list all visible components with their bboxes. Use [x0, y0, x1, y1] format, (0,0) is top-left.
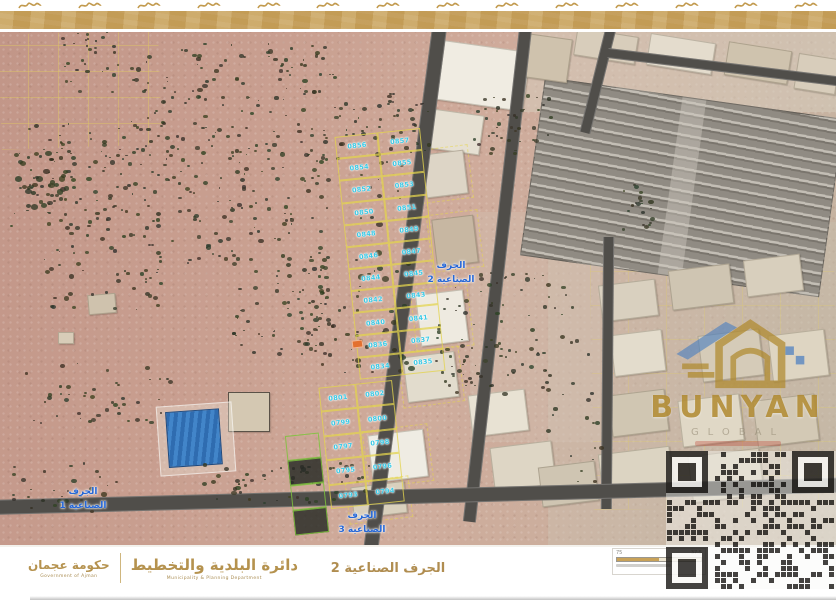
shrub	[309, 259, 314, 263]
plot-number: 0840	[366, 317, 386, 327]
shrub	[106, 32, 108, 33]
shrub	[136, 401, 140, 404]
shrub	[149, 277, 152, 279]
shrub	[212, 78, 216, 82]
shrub	[224, 467, 229, 471]
shrub	[595, 421, 600, 425]
shrub	[184, 102, 187, 104]
shrub	[151, 244, 154, 246]
shrub	[277, 352, 282, 356]
shrub	[180, 171, 182, 173]
shrub	[547, 134, 549, 136]
plot-number: 0852	[352, 185, 372, 195]
area-label-line: الصناعية 3	[338, 525, 385, 535]
shrub	[121, 209, 124, 211]
shrub	[252, 351, 256, 354]
shrub	[570, 341, 574, 344]
shrub	[122, 235, 126, 238]
shrub	[116, 273, 120, 276]
shrub	[287, 308, 289, 309]
shrub	[318, 252, 321, 255]
shrub	[490, 272, 492, 274]
shrub	[187, 209, 192, 213]
shrub	[146, 128, 151, 132]
shrub	[201, 127, 204, 130]
shrub	[622, 228, 625, 231]
area-label-industrial-3: الجرف الصناعية 3	[330, 510, 394, 538]
shrub	[477, 143, 481, 146]
ornament-icon	[376, 1, 400, 10]
shrub	[302, 79, 307, 83]
shrub	[86, 177, 91, 181]
shrub	[113, 307, 117, 310]
shrub	[525, 273, 528, 276]
shrub	[464, 380, 468, 383]
shrub	[166, 158, 168, 159]
shrub	[358, 117, 360, 118]
shrub	[128, 162, 133, 166]
shrub	[250, 479, 254, 482]
shrub	[156, 251, 161, 255]
shrub	[255, 144, 258, 147]
shrub	[334, 338, 338, 341]
area-label-industrial-1: الجرف الصناعية 1	[50, 486, 116, 514]
shrub	[215, 132, 217, 134]
shrub	[83, 395, 86, 397]
shrub	[40, 185, 44, 188]
shrub	[329, 74, 331, 75]
shrub	[204, 98, 208, 101]
plot-number: 0794	[375, 486, 395, 496]
shrub	[26, 210, 28, 212]
shrub	[178, 210, 182, 213]
shrub	[112, 45, 116, 48]
shrub	[562, 394, 564, 396]
shrub	[100, 237, 105, 241]
shrub	[254, 150, 257, 152]
plot-number: 0849	[399, 225, 419, 235]
shrub	[420, 103, 423, 106]
shrub	[446, 298, 450, 301]
shrub	[211, 145, 213, 147]
shrub	[511, 273, 515, 276]
shrub	[199, 220, 202, 222]
shrub	[277, 283, 279, 284]
shrub	[530, 328, 535, 332]
shrub	[205, 80, 210, 84]
shrub	[286, 263, 291, 267]
shrub	[181, 137, 186, 141]
shrub	[541, 386, 546, 390]
shrub	[68, 123, 70, 125]
shrub	[543, 305, 547, 309]
shrub	[493, 97, 495, 98]
shrub	[546, 283, 551, 287]
plot-number: 0800	[367, 413, 387, 423]
shrub	[424, 150, 426, 152]
shrub	[219, 64, 223, 67]
shrub	[513, 152, 517, 156]
shrub	[80, 418, 82, 419]
shrub	[532, 126, 537, 130]
shrub	[218, 255, 221, 257]
shrub	[308, 302, 311, 305]
shrub	[69, 223, 74, 227]
shrub	[312, 90, 316, 94]
shrub	[312, 168, 317, 172]
shrub	[58, 264, 61, 267]
shrub	[109, 157, 111, 159]
area-label-line: الجرف	[436, 261, 465, 271]
shrub	[222, 215, 227, 219]
plot-number: 0836	[368, 339, 388, 349]
shrub	[197, 64, 199, 65]
shrub	[147, 55, 152, 59]
shrub	[103, 208, 107, 211]
shrub	[474, 385, 476, 386]
shrub	[77, 412, 81, 415]
shrub	[253, 217, 257, 220]
shrub	[471, 347, 474, 349]
shrub	[257, 230, 261, 233]
plot-number: 0793	[338, 490, 358, 500]
plot-number: 0844	[361, 273, 381, 283]
shrub	[484, 108, 487, 110]
shrub	[271, 470, 274, 472]
shrub	[10, 225, 13, 227]
shrub	[451, 366, 453, 368]
shrub	[187, 165, 190, 167]
shrub	[300, 141, 303, 143]
shrub	[194, 214, 199, 218]
shrub	[45, 270, 50, 274]
shrub	[12, 498, 16, 501]
shrub	[56, 415, 58, 417]
shrub	[483, 359, 488, 363]
shrub	[69, 465, 72, 468]
shrub	[66, 62, 71, 66]
shrub	[84, 209, 87, 211]
shrub	[282, 222, 287, 226]
shrub	[310, 149, 314, 152]
shrub	[548, 374, 552, 377]
shrub	[149, 140, 153, 143]
shrub	[31, 204, 38, 210]
shrub	[139, 128, 143, 131]
shrub	[299, 311, 303, 314]
shrub	[344, 102, 348, 106]
shrub	[285, 115, 287, 116]
shrub	[122, 158, 124, 160]
shrub	[211, 480, 216, 484]
shrub	[153, 190, 158, 194]
shrub	[27, 156, 30, 159]
shrub	[378, 126, 381, 128]
shrub	[136, 309, 138, 310]
plot-number: 0835	[413, 357, 433, 367]
shrub	[30, 187, 33, 189]
flyer-page: 0856085708540855085208530850085108480849…	[0, 0, 836, 600]
shrub	[462, 364, 464, 366]
shrub	[229, 200, 231, 202]
shrub	[301, 353, 303, 355]
shrub	[271, 167, 275, 171]
shrub	[497, 122, 502, 126]
shrub	[496, 106, 500, 110]
shrub	[30, 507, 33, 510]
shrub	[353, 109, 355, 111]
ornament-icon	[734, 1, 758, 10]
shrub	[502, 304, 504, 306]
shrub	[160, 125, 163, 128]
shrub	[623, 190, 626, 192]
shrub	[224, 59, 227, 62]
shrub	[95, 470, 99, 473]
shrub	[27, 188, 30, 190]
shrub	[59, 135, 61, 137]
shrub	[272, 334, 276, 337]
shrub	[171, 96, 174, 98]
ornament-icon	[675, 1, 699, 10]
shrub	[483, 98, 488, 102]
shrub	[238, 288, 242, 291]
shrub	[553, 407, 558, 411]
ornament-icon	[316, 1, 340, 10]
shrub	[117, 412, 121, 415]
shrub	[216, 474, 221, 478]
plot-number: 0843	[406, 291, 426, 301]
shrub	[301, 317, 304, 320]
shrub	[130, 67, 134, 70]
shrub	[25, 372, 28, 374]
shrub	[393, 115, 396, 117]
shrub	[112, 206, 115, 208]
shrub	[319, 230, 323, 234]
shrub	[627, 210, 630, 212]
shrub	[238, 484, 240, 485]
shrub	[273, 58, 277, 61]
shrub	[261, 171, 263, 173]
shrub	[36, 194, 39, 196]
shrub	[95, 212, 100, 216]
shrub	[226, 237, 231, 241]
shrub	[81, 59, 84, 62]
shrub	[60, 393, 62, 395]
shrub	[325, 298, 327, 299]
shrub	[33, 420, 35, 421]
shrub	[268, 56, 270, 58]
shrub	[319, 73, 322, 75]
shrub	[307, 339, 309, 341]
shrub	[323, 352, 327, 355]
shrub	[167, 81, 169, 82]
shrub	[56, 152, 58, 154]
shrub	[571, 382, 575, 385]
shrub	[165, 136, 170, 140]
shrub	[345, 333, 349, 337]
shrub	[34, 124, 39, 128]
shrub	[470, 381, 474, 384]
shrub	[152, 220, 155, 223]
shrub	[443, 308, 446, 310]
shrub	[480, 291, 482, 293]
shrub	[104, 167, 106, 169]
ornament-icon	[555, 1, 579, 10]
shrub	[157, 269, 159, 271]
shrub	[54, 161, 56, 162]
shrub	[47, 212, 49, 213]
shrub	[208, 139, 210, 141]
shrub	[59, 251, 61, 252]
gold-band	[0, 11, 836, 29]
plot-cell: 0835	[400, 349, 445, 376]
plot-cell	[293, 507, 329, 535]
shrub	[561, 314, 563, 315]
shrub	[181, 49, 184, 51]
shrub	[281, 254, 286, 258]
shrub	[500, 348, 503, 350]
shrub	[112, 73, 116, 77]
shrub	[275, 289, 280, 293]
shrub	[461, 339, 463, 341]
shrub	[249, 258, 253, 261]
plot-number: 0854	[349, 163, 369, 173]
shrub	[479, 277, 484, 281]
shrub	[69, 232, 73, 235]
shrub	[158, 399, 160, 401]
shrub	[515, 116, 518, 119]
shrub	[20, 161, 26, 166]
shrub	[75, 201, 78, 204]
shrub	[123, 186, 128, 190]
shrub	[344, 372, 346, 374]
shrub	[28, 128, 31, 131]
shrub	[144, 269, 148, 272]
shrub	[323, 266, 328, 270]
shrub	[511, 369, 515, 372]
shrub	[217, 128, 222, 132]
shrub	[536, 353, 540, 356]
shrub	[641, 203, 643, 205]
shrub	[166, 77, 168, 79]
shrub	[547, 97, 552, 101]
shrub	[280, 152, 285, 156]
shrub	[113, 249, 117, 253]
shrub	[140, 272, 145, 276]
shrub	[321, 313, 323, 315]
shrub	[12, 494, 15, 496]
shrub	[301, 108, 306, 112]
shrub	[43, 169, 50, 175]
shrub	[525, 277, 530, 281]
shrub	[102, 71, 104, 72]
shrub	[21, 478, 26, 482]
shrub	[324, 303, 327, 306]
shrub	[529, 347, 534, 351]
shrub	[507, 114, 510, 116]
shrub	[26, 204, 31, 208]
shrub	[319, 195, 324, 199]
shrub	[267, 158, 270, 161]
shrub	[178, 182, 181, 185]
shrub	[249, 232, 253, 235]
shrub	[111, 91, 114, 93]
shrub	[276, 275, 279, 277]
ornament-icon	[137, 1, 161, 10]
shrub	[250, 112, 255, 116]
qr-code	[666, 451, 836, 589]
shrub	[280, 467, 283, 469]
shrub	[91, 293, 95, 296]
shrub	[202, 482, 207, 486]
shrub	[554, 307, 556, 309]
shrub	[498, 342, 501, 345]
shrub	[397, 109, 401, 112]
shrub	[303, 93, 306, 95]
shrub	[105, 291, 108, 294]
shrub	[311, 177, 314, 179]
shrub	[463, 311, 468, 315]
shrub	[149, 421, 153, 424]
shrub	[644, 225, 649, 229]
shrub	[82, 270, 84, 271]
shrub	[256, 104, 260, 107]
shrub	[117, 64, 119, 66]
shrub	[101, 151, 103, 152]
shrub	[59, 156, 63, 159]
shrub	[282, 167, 284, 169]
shrub	[489, 152, 494, 156]
page-edge-shadow	[30, 596, 836, 600]
plot-cell: 0794	[365, 477, 404, 505]
shrub	[193, 192, 196, 194]
shrub	[68, 394, 70, 395]
shrub	[131, 121, 133, 122]
shrub	[253, 286, 258, 290]
shrub	[105, 408, 109, 411]
shrub	[641, 211, 645, 214]
shrub	[292, 291, 294, 293]
shrub	[246, 154, 248, 155]
shrub	[27, 496, 30, 499]
shrub	[310, 313, 314, 316]
shrub	[145, 278, 147, 280]
shrub	[147, 117, 150, 119]
shrub	[241, 110, 243, 112]
shrub	[326, 207, 329, 209]
shrub	[287, 274, 292, 278]
shrub	[321, 363, 324, 365]
shrub	[64, 66, 66, 68]
shrub	[70, 81, 72, 83]
shrub	[48, 139, 52, 142]
shrub	[61, 174, 66, 178]
shrub	[241, 309, 245, 312]
shrub	[284, 205, 288, 208]
shrub	[57, 189, 64, 195]
shrub	[254, 270, 258, 273]
shrub	[84, 63, 87, 65]
shrub	[72, 162, 77, 166]
shrub	[241, 207, 243, 208]
shrub	[280, 348, 283, 351]
shrub	[323, 134, 326, 136]
shrub	[465, 385, 467, 387]
plot-number: 0801	[328, 393, 348, 403]
shrub	[170, 145, 175, 149]
shrub	[561, 286, 565, 290]
shrub	[102, 170, 105, 172]
